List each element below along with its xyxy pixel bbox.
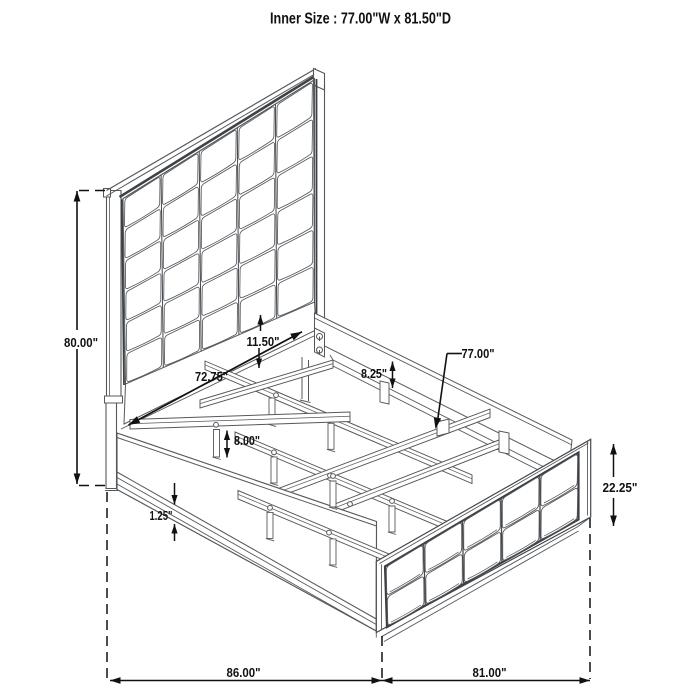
svg-text:8.25": 8.25" — [361, 367, 387, 381]
svg-text:22.25": 22.25" — [603, 481, 638, 495]
svg-text:1.25": 1.25" — [150, 509, 173, 523]
svg-text:86.00": 86.00" — [227, 666, 261, 680]
svg-text:8.00": 8.00" — [234, 434, 260, 448]
svg-text:11.50": 11.50" — [247, 335, 280, 349]
svg-text:81.00": 81.00" — [473, 666, 507, 680]
svg-text:80.00": 80.00" — [64, 336, 98, 350]
svg-text:72.75": 72.75" — [195, 370, 228, 384]
svg-text:Inner Size : 77.00"W x 81.50"D: Inner Size : 77.00"W x 81.50"D — [270, 11, 451, 28]
svg-text:77.00": 77.00" — [462, 347, 495, 361]
